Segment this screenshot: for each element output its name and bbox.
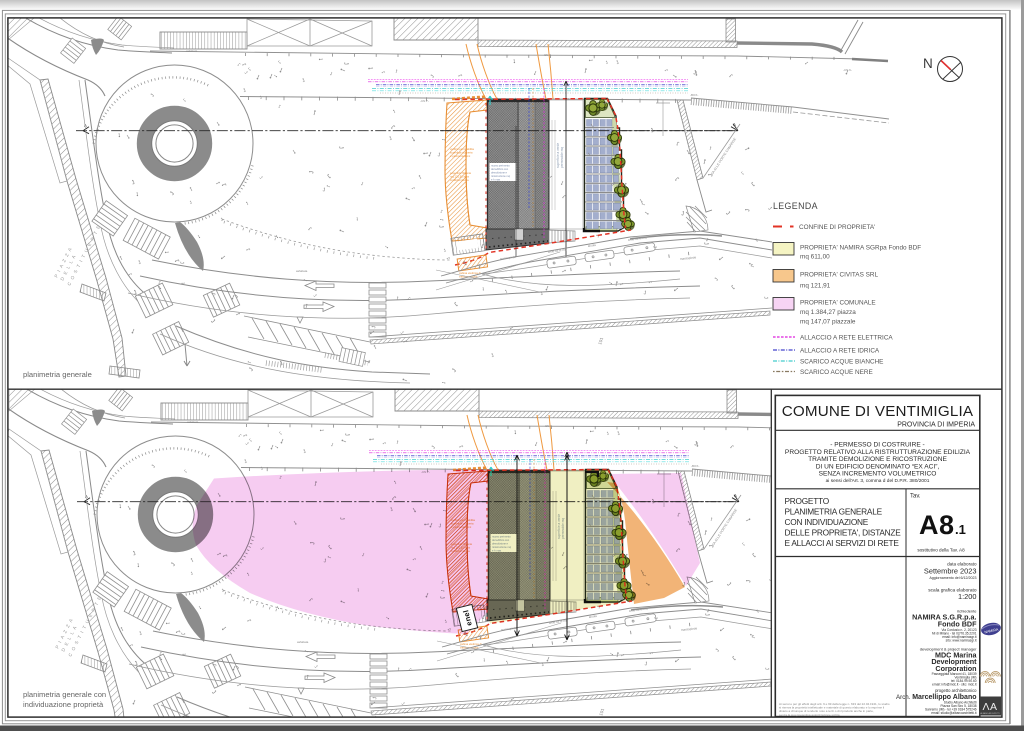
svg-text:individuazione proprietà: individuazione proprietà	[23, 700, 104, 709]
svg-text:senza la sua preventiva autori: senza la sua preventiva autorizzazione s…	[779, 713, 841, 717]
svg-text:PROGETTO RELATIVO ALLA RISTRUT: PROGETTO RELATIVO ALLA RISTRUTTURAZIONE …	[785, 449, 971, 456]
svg-text:1:200: 1:200	[958, 592, 977, 601]
svg-text:A8: A8	[919, 510, 955, 540]
svg-text:N: N	[923, 56, 933, 71]
svg-text:email: studio@albanoarchitetti: email: studio@albanoarchitetti.it	[931, 711, 976, 715]
svg-text:E ALLACCI AI SERVIZI DI RETE: E ALLACCI AI SERVIZI DI RETE	[785, 538, 900, 548]
svg-text:PROGETTO: PROGETTO	[785, 496, 830, 506]
svg-text:CON INDIVIDUAZIONE: CON INDIVIDUAZIONE	[785, 517, 869, 527]
svg-text:PLANIMETRIA GENERALE: PLANIMETRIA GENERALE	[785, 507, 883, 517]
svg-text:email: info@mdc.it - sito: mdc: email: info@mdc.it - sito: mdc.it	[932, 683, 976, 687]
svg-text:.1: .1	[955, 522, 966, 537]
svg-text:Tav.: Tav.	[910, 494, 921, 500]
svg-text:ALLACCIO A RETE IDRICA: ALLACCIO A RETE IDRICA	[800, 348, 880, 355]
svg-text:PROPRIETA' NAMIRA SGRpa Fondo: PROPRIETA' NAMIRA SGRpa Fondo BDF	[800, 245, 921, 252]
svg-text:SENZA INCREMENTO VOLUMETRICO: SENZA INCREMENTO VOLUMETRICO	[819, 471, 937, 478]
svg-text:mq 1.384,27 piazza: mq 1.384,27 piazza	[800, 309, 856, 316]
svg-text:SCARICO ACQUE BIANCHE: SCARICO ACQUE BIANCHE	[800, 359, 883, 366]
svg-text:ai sensi dell'Art. 3, comma d: ai sensi dell'Art. 3, comma d del D.P.R.…	[826, 478, 930, 484]
svg-text:Aggiornamento del 6/12/2023: Aggiornamento del 6/12/2023	[929, 576, 976, 580]
svg-text:TRAMITE DEMOLIZIONE E RICOSTRU: TRAMITE DEMOLIZIONE E RICOSTRUZIONE	[808, 456, 947, 463]
svg-text:DELLE PROPRIETA', DISTANZE: DELLE PROPRIETA', DISTANZE	[785, 528, 902, 538]
svg-text:ΛA: ΛA	[982, 701, 997, 713]
svg-text:planimetria generale: planimetria generale	[23, 370, 92, 379]
svg-text:planimetria generale con: planimetria generale con	[23, 690, 106, 699]
svg-text:PROPRIETA' COMUNALE: PROPRIETA' COMUNALE	[800, 300, 876, 307]
svg-text:ALBANO ARCHITETTI: ALBANO ARCHITETTI	[980, 712, 1000, 715]
svg-text:LEGENDA: LEGENDA	[773, 201, 818, 211]
svg-text:sito: www.namirasgr.it: sito: www.namirasgr.it	[946, 639, 977, 643]
svg-text:mq 611,00: mq 611,00	[800, 254, 830, 261]
svg-text:SCARICO ACQUE NERE: SCARICO ACQUE NERE	[800, 369, 873, 376]
svg-text:PROPRIETA' CIVITAS SRL: PROPRIETA' CIVITAS SRL	[800, 272, 878, 279]
svg-text:- PERMESSO DI COSTRUIRE -: - PERMESSO DI COSTRUIRE -	[830, 442, 925, 449]
svg-text:Settembre 2023: Settembre 2023	[924, 567, 977, 576]
svg-text:mq 121,91: mq 121,91	[800, 283, 831, 290]
svg-text:ALLACCIO A RETE ELETTRICA: ALLACCIO A RETE ELETTRICA	[800, 335, 893, 342]
svg-text:COMUNE DI VENTIMIGLIA: COMUNE DI VENTIMIGLIA	[782, 403, 974, 420]
svg-text:PROVINCIA DI IMPERIA: PROVINCIA DI IMPERIA	[897, 422, 975, 429]
svg-text:DI UN EDIFICIO DENOMINATO “EX: DI UN EDIFICIO DENOMINATO “EX ACI”,	[816, 463, 940, 470]
svg-text:sostitutivo della Tav. A8: sostitutivo della Tav. A8	[917, 548, 965, 553]
svg-text:progetto architettonico: progetto architettonico	[935, 688, 977, 693]
svg-text:mq 147,07 piazzale: mq 147,07 piazzale	[800, 319, 856, 326]
svg-text:CONFINE DI PROPRIETA': CONFINE DI PROPRIETA'	[799, 224, 875, 231]
